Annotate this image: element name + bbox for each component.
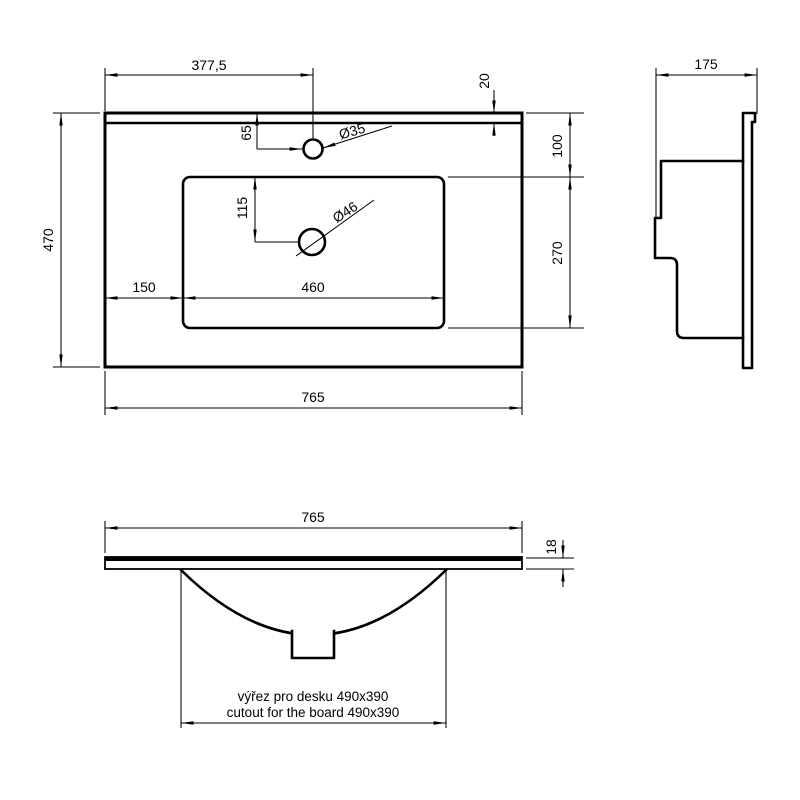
dim-label-bowl-depth: 270 bbox=[549, 241, 565, 265]
dim-label-faucet-y: 65 bbox=[238, 125, 254, 141]
dim-label-faucet-x: 377,5 bbox=[191, 57, 226, 73]
technical-drawing: 377,5 20 65 Ø35 115 Ø46 150 460 470 bbox=[0, 0, 800, 800]
dim-label-side-depth: 175 bbox=[694, 56, 718, 72]
front-view: 765 18 výřez pro desku 490x390 cutout fo… bbox=[105, 509, 574, 728]
back-panel-profile bbox=[743, 113, 755, 368]
dim-label-bowl-top: 100 bbox=[549, 134, 565, 158]
dim-label-front-width: 765 bbox=[301, 509, 325, 525]
dim-label-drain-y: 115 bbox=[234, 197, 250, 220]
bowl-outline bbox=[183, 177, 444, 328]
dim-label-bowl-width: 460 bbox=[301, 279, 325, 295]
dim-label-width-total: 765 bbox=[301, 389, 325, 405]
dim-label-thickness: 18 bbox=[543, 539, 559, 555]
dim-label-drain-hole: Ø46 bbox=[330, 198, 361, 226]
dim-label-depth-total: 470 bbox=[40, 228, 56, 252]
cutout-note-english: cutout for the board 490x390 bbox=[227, 705, 400, 720]
dim-label-bowl-left: 150 bbox=[132, 279, 156, 295]
drain-trap-box bbox=[292, 631, 334, 658]
bowl-front-arc bbox=[181, 570, 446, 635]
faucet-hole bbox=[304, 140, 323, 159]
cutout-note-czech: výřez pro desku 490x390 bbox=[238, 689, 389, 704]
top-view: 377,5 20 65 Ø35 115 Ø46 150 460 470 bbox=[40, 57, 584, 415]
side-view: 175 bbox=[655, 56, 757, 368]
basin-profile bbox=[655, 161, 743, 338]
dim-label-back-ledge: 20 bbox=[476, 73, 492, 89]
drawing-sheet: 377,5 20 65 Ø35 115 Ø46 150 460 470 bbox=[0, 0, 800, 800]
